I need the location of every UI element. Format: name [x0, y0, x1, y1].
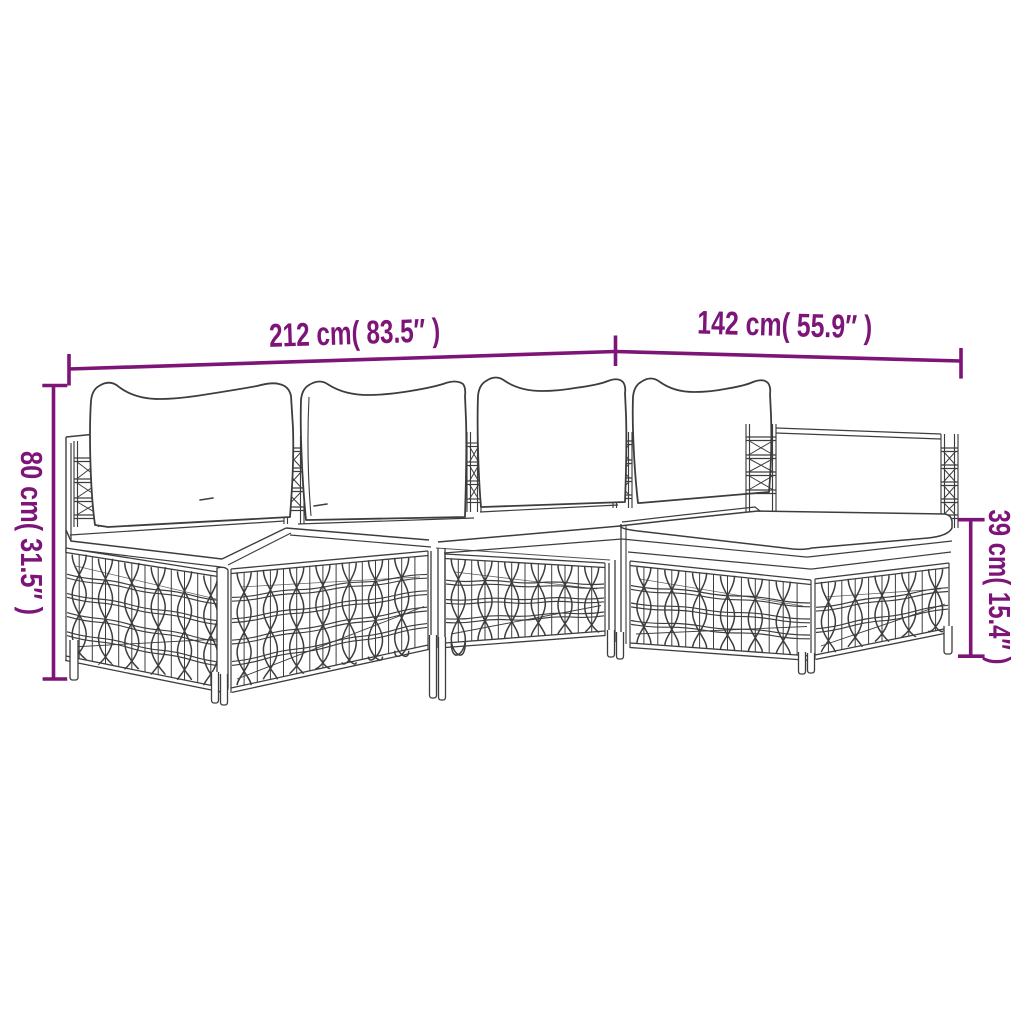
svg-text:212 cm( 83.5″ ): 212 cm( 83.5″ ) [269, 311, 441, 354]
svg-text:142 cm( 55.9″ ): 142 cm( 55.9″ ) [697, 304, 873, 346]
svg-text:39 cm( 15.4″ ): 39 cm( 15.4″ ) [982, 510, 1017, 665]
svg-text:80 cm( 31.5″ ): 80 cm( 31.5″ ) [14, 451, 49, 615]
